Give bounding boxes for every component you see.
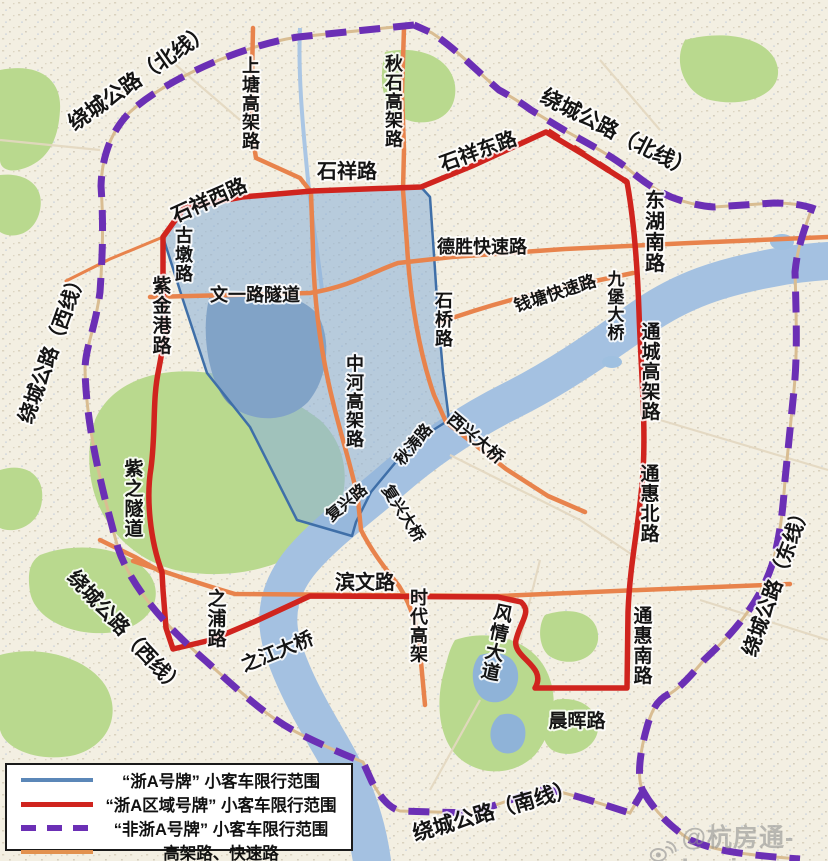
road-label-shiqiao: 石桥路 (434, 291, 454, 349)
legend-swatch-purple-dashed-line (21, 825, 93, 831)
legend: “浙A号牌” 小客车限行范围 “浙A区域号牌” 小客车限行范围 “非浙A号牌” … (5, 763, 353, 851)
road-label-jiubao-bridge: 九堡大桥 (607, 270, 626, 343)
road-label-tonghui-south: 通惠南路 (633, 605, 653, 687)
road-label-binwen: 滨文路 (335, 570, 396, 594)
legend-row-zhea-region-plate: “浙A区域号牌” 小客车限行范围 (21, 792, 343, 816)
legend-row-non-zhea-plate: “非浙A号牌” 小客车限行范围 (21, 816, 343, 840)
legend-row-elevated-roads: 高架路、快速路 (21, 840, 343, 861)
watermark-handle: @杭房通-Louis (682, 818, 828, 861)
road-label-tongcheng-viaduct: 通城高架路 (640, 321, 661, 423)
legend-label: 高架路、快速路 (99, 840, 343, 861)
road-label-zhonghe-viaduct: 中河高架路 (346, 353, 365, 450)
road-label-tonghui-north: 通惠北路 (640, 463, 660, 545)
legend-row-zhea-plate: “浙A号牌” 小客车限行范围 (21, 768, 343, 792)
legend-swatch-blue-line (21, 778, 93, 782)
watermark: @杭房通-Louis (648, 818, 828, 861)
road-label-zijingang: 紫金港路 (151, 275, 172, 357)
legend-label: “浙A号牌” 小客车限行范围 (99, 768, 343, 792)
legend-label: “非浙A号牌” 小客车限行范围 (99, 816, 343, 840)
road-label-shangtang-viaduct: 上塘高架路 (242, 56, 261, 152)
road-label-wenyi-tunnel: 文一路隧道 (210, 284, 300, 305)
road-label-desheng-expwy: 德胜快速路 (437, 236, 528, 257)
road-label-zizhi-tunnel: 紫之隧道 (124, 458, 143, 540)
road-label-shidai-viaduct: 时代高架 (409, 588, 428, 665)
road-label-qiushi-viaduct: 秋石高架路 (384, 53, 404, 150)
hangzhou-restriction-map: 绕城公路（北线） 绕城公路（北线） 绕城公路（西线） 绕城公路（西线） 绕城公路… (0, 0, 828, 861)
road-label-shixiang-rd: 石祥路 (316, 159, 378, 183)
map-canvas: 绕城公路（北线） 绕城公路（北线） 绕城公路（西线） 绕城公路（西线） 绕城公路… (0, 0, 828, 861)
road-label-chenhui: 晨晖路 (548, 709, 606, 732)
road-label-donghu-south: 东湖南路 (645, 188, 666, 275)
legend-label: “浙A区域号牌” 小客车限行范围 (99, 792, 343, 816)
legend-swatch-red-line (21, 802, 93, 807)
road-label-zhipu: 之浦路 (207, 587, 227, 650)
legend-swatch-orange-line (21, 850, 93, 854)
weibo-icon (648, 836, 677, 861)
road-label-gudun: 古墩路 (175, 225, 194, 284)
